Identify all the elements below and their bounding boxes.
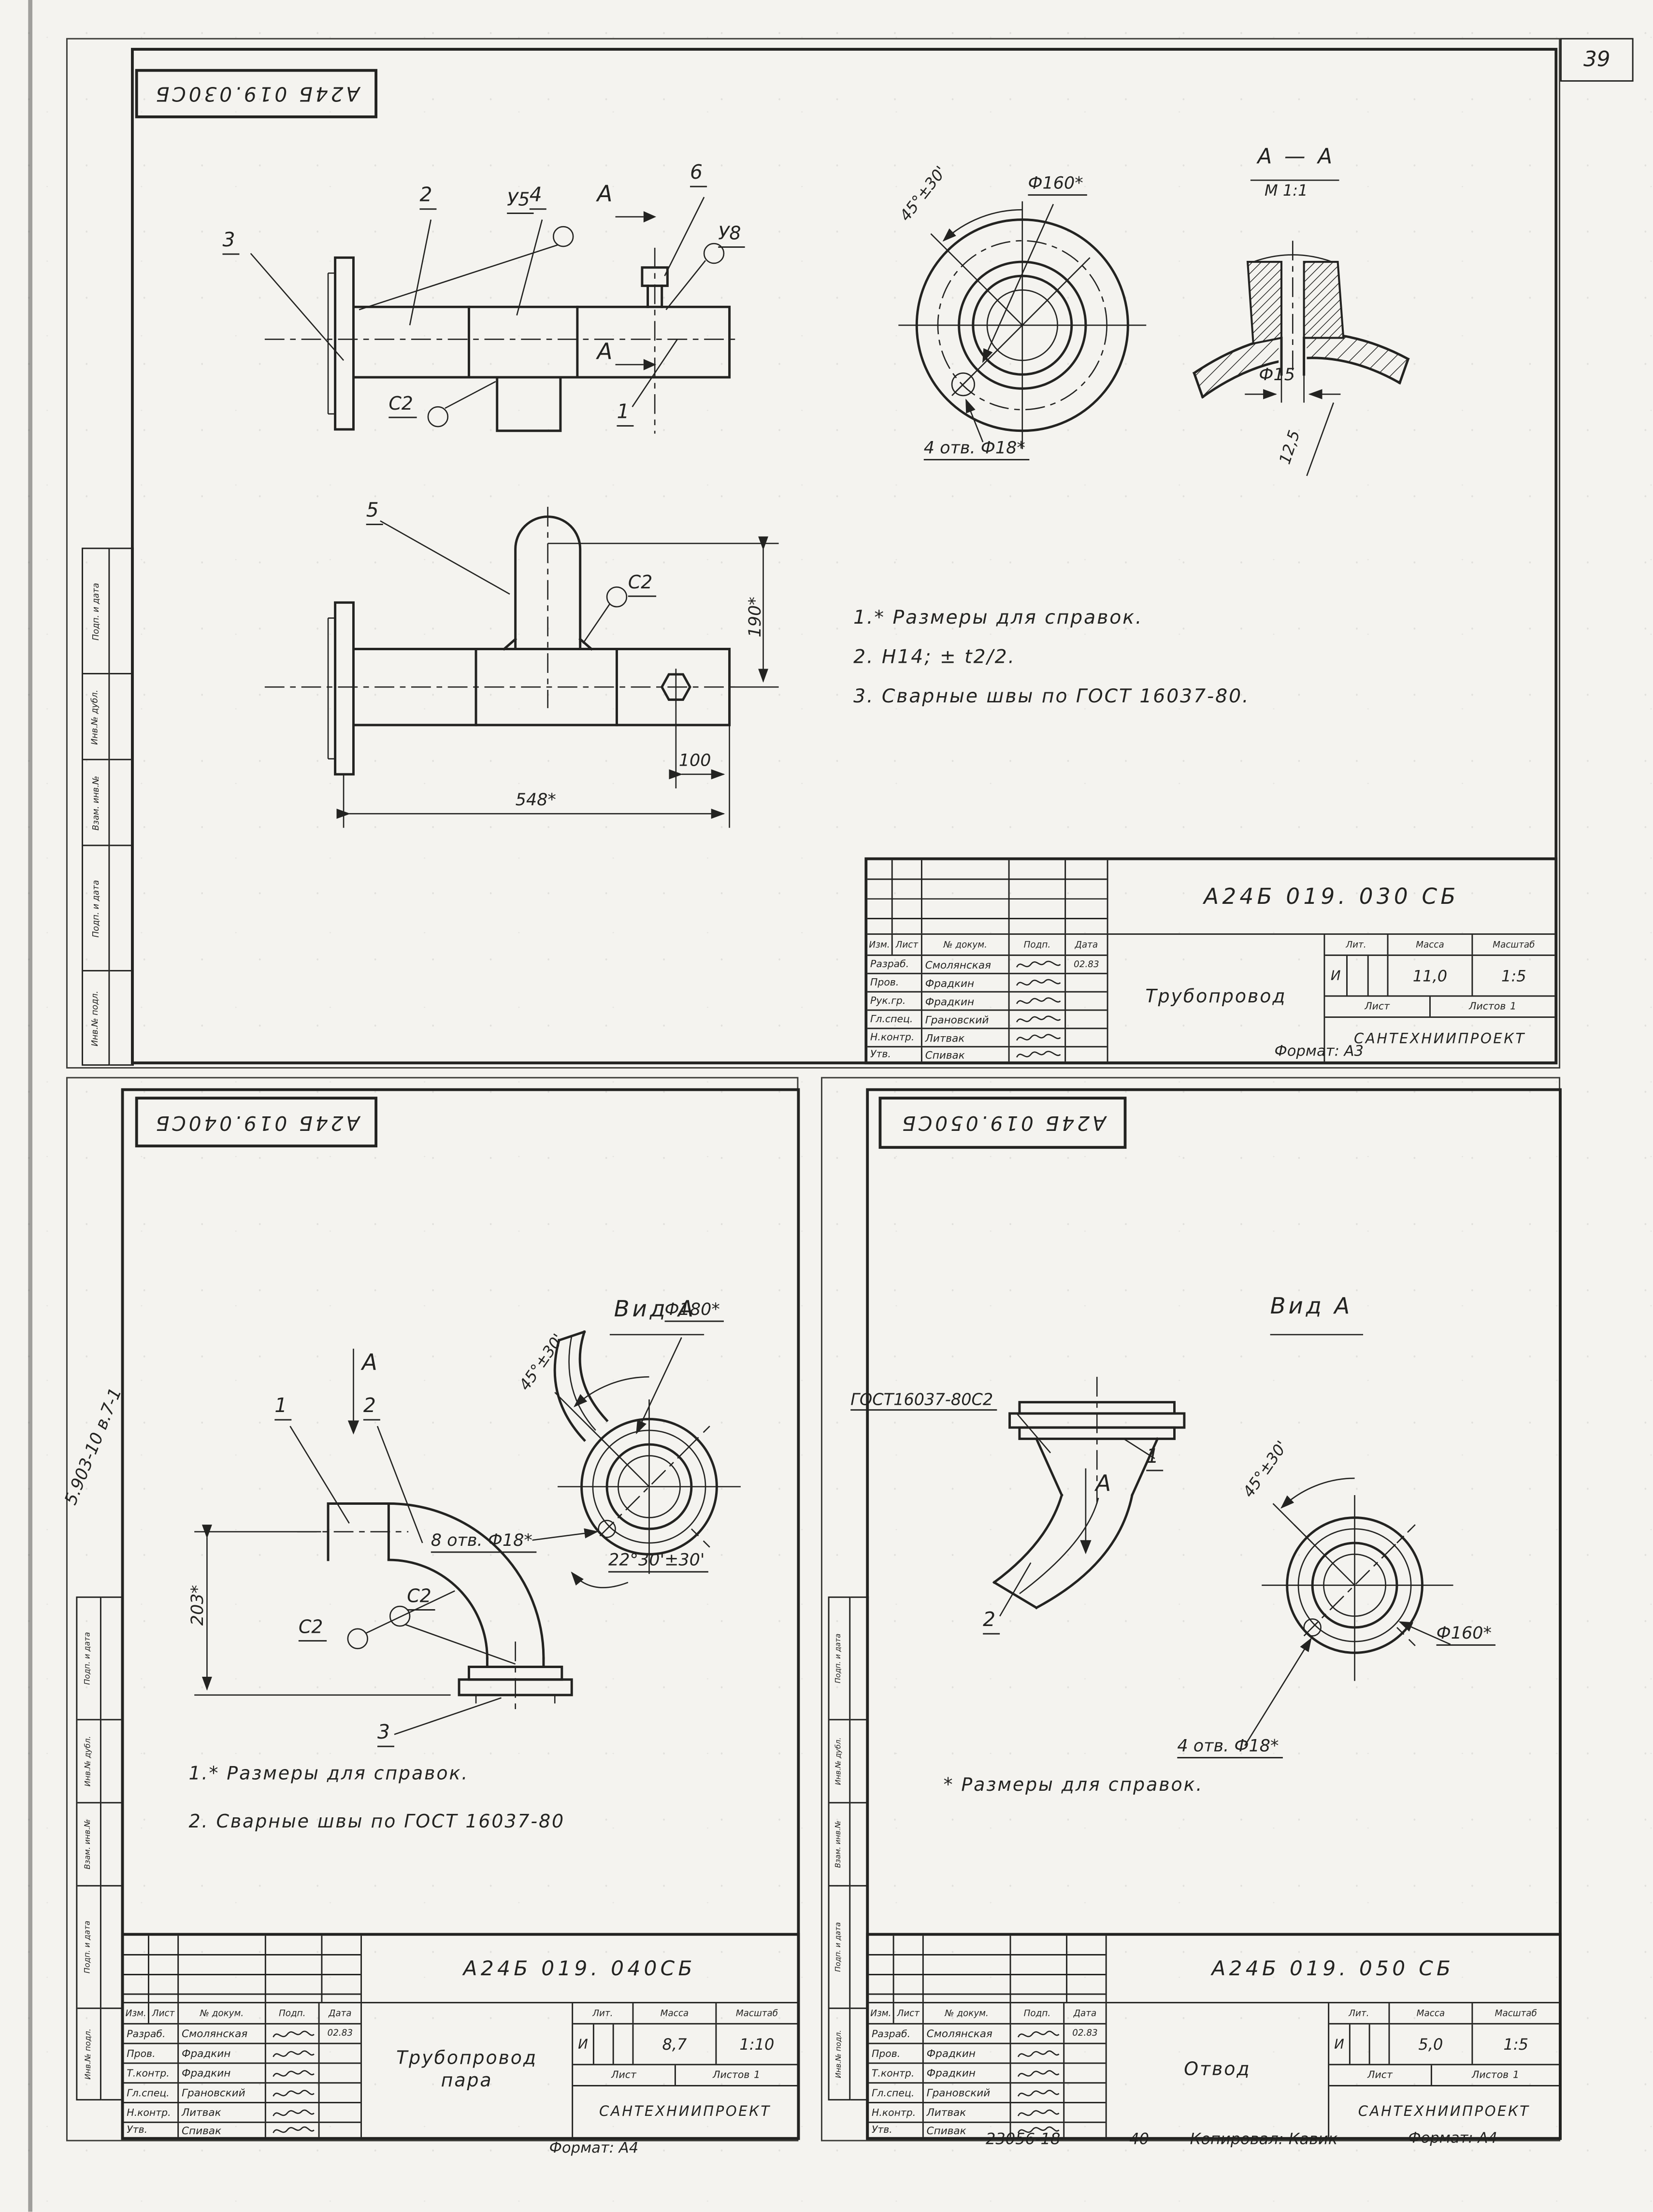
tb-date xyxy=(318,2044,360,2063)
signature xyxy=(270,2123,315,2137)
dim-holes-4x18: 4 отв. Ф18* xyxy=(1177,1737,1283,1758)
dim-d160: Ф160* xyxy=(1028,174,1087,195)
tb-role: Разраб. xyxy=(867,956,921,973)
tb-date xyxy=(318,2064,360,2082)
tb-role: Пров. xyxy=(869,2044,922,2063)
tb-person: Смолянская xyxy=(921,956,1008,973)
signature xyxy=(1015,2105,1060,2119)
doc-number: А24Б 019. 040СБ xyxy=(360,1936,797,2002)
tb-date xyxy=(1064,1011,1107,1028)
listov-value: 1 xyxy=(1513,2069,1519,2081)
tb-header: Лист xyxy=(891,935,921,955)
view-arrow xyxy=(1080,1469,1091,1555)
part-name: Трубопровод xyxy=(1107,935,1324,1061)
dim-548: 548* xyxy=(516,791,556,809)
signature xyxy=(1013,957,1061,971)
tb-role: Гл.спец. xyxy=(869,2084,922,2102)
listov-cell: Листов 1 xyxy=(1431,2065,1559,2085)
vid-a-view xyxy=(1245,1478,1453,1746)
list-label: Лист xyxy=(1329,2065,1431,2085)
mass-header: Масса xyxy=(1388,2003,1471,2023)
signature xyxy=(1015,2026,1060,2041)
tb-role: Т.контр. xyxy=(869,2064,922,2082)
signature xyxy=(270,2046,315,2060)
tb-date xyxy=(1063,2044,1105,2063)
second-view-tee xyxy=(265,507,779,828)
callout-4: 4 xyxy=(530,186,546,210)
tb-person: Грановский xyxy=(921,1011,1008,1028)
format-label-a3: Формат: А3 xyxy=(1274,1044,1364,1060)
mass-header: Масса xyxy=(632,2003,716,2023)
callout-2: 2 xyxy=(419,186,436,210)
title-block: А24Б 019. 030 СБ Изм. Лист № докум. Подп… xyxy=(864,857,1557,1064)
section-arrow-label-bottom: А xyxy=(597,341,613,364)
tb-header: Дата xyxy=(1064,935,1107,955)
note-line: 2. Н14; ± t2/2. xyxy=(853,648,1016,668)
dim-angle-2230: 22°30'±30' xyxy=(608,1552,709,1572)
signature xyxy=(1015,2066,1060,2080)
tb-person: Фрадкин xyxy=(921,993,1008,1010)
footer-sheet-number: 40 xyxy=(1129,2131,1149,2148)
callout-2: 2 xyxy=(363,1397,380,1420)
tb-role: Пров. xyxy=(867,974,921,991)
weld-label-c2a: С2 xyxy=(299,1619,327,1641)
listov-value: 1 xyxy=(1510,1001,1516,1012)
tb-header: Лист xyxy=(148,2003,177,2023)
list-label: Лист xyxy=(573,2065,675,2085)
scale-header: Масштаб xyxy=(1471,2003,1559,2023)
format-label-a4-left: Формат: А4 xyxy=(549,2141,639,2157)
tb-date xyxy=(1063,2103,1105,2122)
tb-date xyxy=(318,2103,360,2122)
scan-edge-artifact xyxy=(28,0,32,2212)
callout-1: 1 xyxy=(1146,1447,1163,1471)
tb-role: Н.контр. xyxy=(124,2103,177,2122)
sheet-a3-truboprovod: А24Б 019.030СБ Подп. и дата Инв.№ дубл. … xyxy=(66,38,1560,1069)
scale-header: Масштаб xyxy=(1471,935,1554,955)
tb-date xyxy=(1063,2123,1105,2137)
tb-header: Подп. xyxy=(1008,935,1065,955)
listov-cell: Листов 1 xyxy=(675,2065,797,2085)
weld-label-c2b: С2 xyxy=(628,574,657,597)
tb-date xyxy=(1063,2064,1105,2082)
organization: САНТЕХНИИПРОЕКТ xyxy=(573,2085,797,2137)
tb-person: Литвак xyxy=(177,2103,265,2122)
tb-date xyxy=(1064,1029,1107,1046)
tb-role: Гл.спец. xyxy=(124,2084,177,2102)
section-scale: М 1:1 xyxy=(1265,183,1308,200)
signature xyxy=(1013,1047,1061,1061)
tb-person: Фрадкин xyxy=(921,974,1008,991)
tb-role: Т.контр. xyxy=(124,2064,177,2082)
page-number-box: 39 xyxy=(1560,38,1634,82)
listov-value: 1 xyxy=(754,2069,760,2081)
revision-grid xyxy=(124,1936,360,2002)
tb-date xyxy=(318,2084,360,2102)
view-arrow-label: А xyxy=(362,1352,377,1375)
bend-main-view xyxy=(994,1377,1184,1616)
vid-a-view xyxy=(532,1332,741,1588)
footer-copied-by: Копировал: Кавик xyxy=(1190,2131,1338,2148)
dim-d180: Ф180* xyxy=(665,1301,724,1322)
weld-label-y8: У8 xyxy=(718,225,745,247)
listov-label: Листов xyxy=(1472,2069,1509,2081)
revision-grid xyxy=(869,1936,1106,2002)
tb-person: Смолянская xyxy=(922,2025,1010,2043)
tb-header: Лист xyxy=(893,2003,922,2023)
scale-value: 1:10 xyxy=(715,2025,797,2064)
signature xyxy=(270,2105,315,2119)
dim-203: 203* xyxy=(189,1585,207,1626)
tb-role: Н.контр. xyxy=(867,1029,921,1046)
tb-person: Фрадкин xyxy=(922,2064,1010,2082)
tb-person: Литвак xyxy=(921,1029,1008,1046)
tb-date xyxy=(1064,1047,1107,1061)
mass-value: 5,0 xyxy=(1388,2025,1471,2064)
sheet-a4-otvod: А24Б 019.050СБ Подп. и дата Инв.№ дубл. … xyxy=(821,1077,1560,2141)
tb-header: Дата xyxy=(1063,2003,1105,2023)
tb-role: Утв. xyxy=(867,1047,921,1061)
main-view-pipe xyxy=(251,197,741,434)
part-name-line1: Трубопровод xyxy=(1146,987,1287,1009)
title-block: А24Б 019. 040СБ Изм. Лист № докум. Подп.… xyxy=(121,1933,800,2140)
scale-value: 1:5 xyxy=(1471,2025,1559,2064)
doc-number: А24Б 019. 050 СБ xyxy=(1106,1936,1559,2002)
dim-holes-8x18: 8 отв. Ф18* xyxy=(431,1532,537,1553)
callout-6: 6 xyxy=(690,163,707,187)
sheet-a4-truboprovod-para: А24Б 019.040СБ 5.903-10 в.7-1 Подп. и да… xyxy=(66,1077,798,2141)
elbow-view xyxy=(194,1426,572,1734)
lit-value: И xyxy=(573,2025,593,2064)
part-name: Отвод xyxy=(1106,2003,1328,2137)
tb-date: 02.83 xyxy=(318,2025,360,2043)
tb-date: 02.83 xyxy=(1063,2025,1105,2043)
gost-weld-label: ГОСТ16037-80С2 xyxy=(850,1391,997,1411)
revision-grid xyxy=(867,860,1107,934)
dim-190: 190* xyxy=(747,597,764,637)
tb-role: Разраб. xyxy=(124,2025,177,2043)
tb-header: Изм. xyxy=(867,935,891,955)
tb-header: № докум. xyxy=(177,2003,265,2023)
tb-role: Пров. xyxy=(124,2044,177,2063)
flange-front-view xyxy=(898,201,1146,449)
callout-3: 3 xyxy=(222,231,239,255)
part-name-line1: Трубопровод xyxy=(396,2048,537,2070)
signature xyxy=(1013,994,1061,1008)
tb-person: Литвак xyxy=(922,2103,1010,2122)
tb-role: Н.контр. xyxy=(869,2103,922,2122)
signature xyxy=(270,2066,315,2080)
lit-value: И xyxy=(1329,2025,1349,2064)
doc-number: А24Б 019. 030 СБ xyxy=(1107,860,1555,934)
tb-role: Утв. xyxy=(869,2123,922,2137)
list-label: Лист xyxy=(1325,997,1429,1016)
part-name-line1: Отвод xyxy=(1184,2059,1251,2081)
mass-value: 11,0 xyxy=(1387,956,1472,996)
tb-person: Фрадкин xyxy=(922,2044,1010,2063)
tb-person: Грановский xyxy=(177,2084,265,2102)
callout-1: 1 xyxy=(617,402,633,426)
dim-holes-4x18: 4 отв. Ф18* xyxy=(924,439,1030,460)
tb-person: Смолянская xyxy=(177,2025,265,2043)
note-line: 1.* Размеры для справок. xyxy=(853,608,1143,628)
tb-person: Спивак xyxy=(921,1047,1008,1061)
callout-5: 5 xyxy=(366,501,383,525)
scale-header: Масштаб xyxy=(715,2003,797,2023)
tb-role: Утв. xyxy=(124,2123,177,2137)
tb-date xyxy=(1064,993,1107,1010)
weld-label-c2b: С2 xyxy=(407,1588,435,1610)
listov-label: Листов xyxy=(713,2069,749,2081)
callout-2: 2 xyxy=(983,1611,1000,1634)
title-block: А24Б 019. 050 СБ Изм. Лист № докум. Подп… xyxy=(866,1933,1562,2140)
dim-d15: Ф15 xyxy=(1259,366,1295,384)
section-arrow-label-top: А xyxy=(597,183,613,207)
organization: САНТЕХНИИПРОЕКТ xyxy=(1329,2085,1559,2137)
tb-role: Разраб. xyxy=(869,2025,922,2043)
tb-person: Спивак xyxy=(177,2123,265,2137)
tb-date xyxy=(318,2123,360,2137)
tb-date xyxy=(1063,2084,1105,2102)
mass-value: 8,7 xyxy=(632,2025,716,2064)
tb-role: Рук.гр. xyxy=(867,993,921,1010)
weld-label-c2: С2 xyxy=(388,396,417,418)
signature xyxy=(270,2026,315,2041)
footer-order-number: 23056-18 xyxy=(986,2131,1060,2148)
view-title: Вид А xyxy=(1270,1295,1352,1319)
signature xyxy=(1013,1012,1061,1026)
mass-header: Масса xyxy=(1387,935,1472,955)
tb-header: Подп. xyxy=(1010,2003,1064,2023)
tb-person: Грановский xyxy=(922,2084,1010,2102)
section-title: А — А xyxy=(1257,146,1335,169)
footer-format-a4: Формат: А4 xyxy=(1408,2131,1497,2147)
scanned-drawing-page: 39 А24Б 019.030СБ Подп. и дата Инв.№ дуб… xyxy=(0,0,1653,2212)
note-line: * Размеры для справок. xyxy=(944,1777,1204,1796)
part-name-line2: пара xyxy=(441,2070,493,2092)
lit-header: Лит. xyxy=(573,2003,632,2023)
signature xyxy=(1015,2046,1060,2060)
tb-header: № докум. xyxy=(921,935,1008,955)
callout-3: 3 xyxy=(377,1723,394,1747)
tb-role: Гл.спец. xyxy=(867,1011,921,1028)
signature xyxy=(1013,1030,1061,1044)
lit-header: Лит. xyxy=(1329,2003,1388,2023)
note-line: 1.* Размеры для справок. xyxy=(189,1766,469,1785)
page-number: 39 xyxy=(1583,49,1610,71)
listov-cell: Листов 1 xyxy=(1429,997,1554,1016)
signature xyxy=(1013,976,1061,990)
note-line: 3. Сварные швы по ГОСТ 16037-80. xyxy=(853,687,1250,707)
note-line: 2. Сварные швы по ГОСТ 16037-80 xyxy=(189,1813,565,1833)
scale-value: 1:5 xyxy=(1471,956,1554,996)
section-a-a xyxy=(1194,180,1408,476)
signature xyxy=(270,2086,315,2100)
tb-date: 02.83 xyxy=(1064,956,1107,973)
lit-header: Лит. xyxy=(1325,935,1387,955)
dim-100: 100 xyxy=(679,752,711,770)
tb-header: Изм. xyxy=(124,2003,148,2023)
view-arrow-label: А xyxy=(1095,1472,1111,1496)
view-arrow xyxy=(348,1349,359,1435)
dim-d160: Ф160* xyxy=(1437,1625,1496,1645)
part-name: Трубопровод пара xyxy=(360,2003,572,2137)
tb-header: Дата xyxy=(318,2003,360,2023)
tb-header: Подп. xyxy=(265,2003,318,2023)
listov-label: Листов xyxy=(1469,1001,1506,1012)
callout-1: 1 xyxy=(274,1397,291,1420)
lit-value: И xyxy=(1325,956,1346,996)
tb-person: Фрадкин xyxy=(177,2064,265,2082)
tb-person: Фрадкин xyxy=(177,2044,265,2063)
tb-date xyxy=(1064,974,1107,991)
tb-header: Изм. xyxy=(869,2003,893,2023)
signature xyxy=(1015,2086,1060,2100)
tb-header: № докум. xyxy=(922,2003,1010,2023)
